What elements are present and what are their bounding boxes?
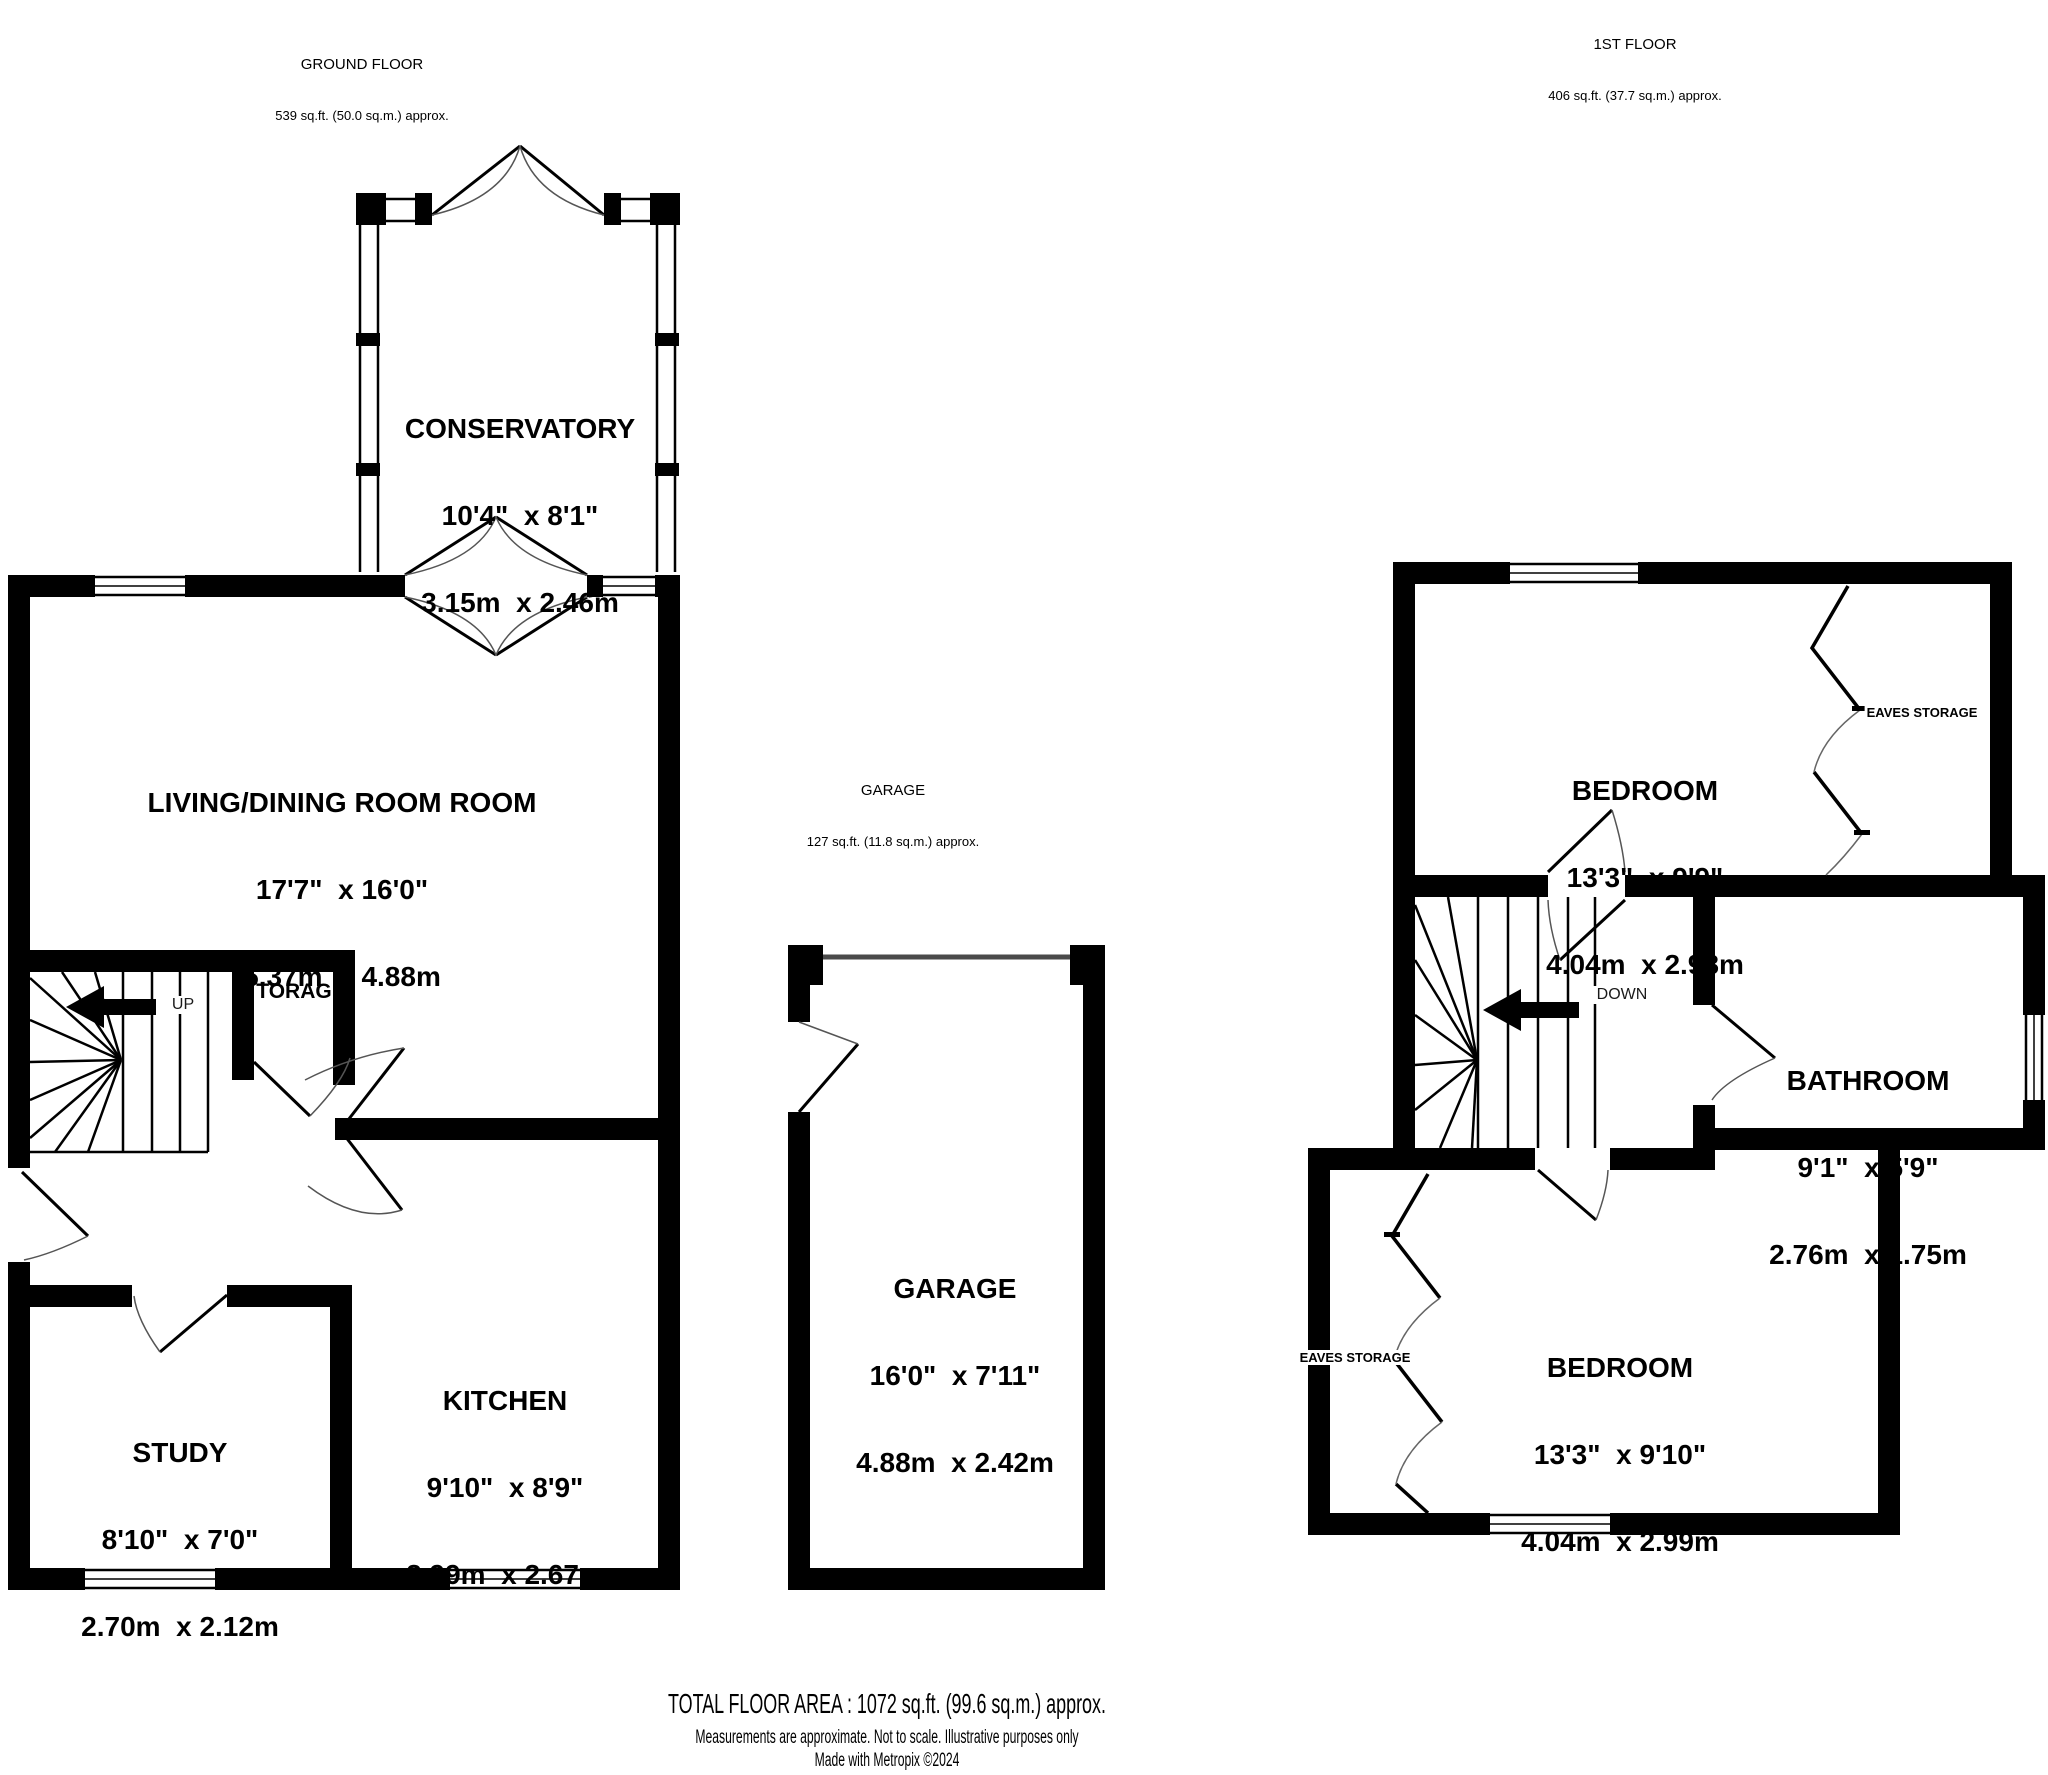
room-name: LIVING/DINING ROOM ROOM — [148, 788, 537, 817]
room-name: CONSERVATORY — [405, 414, 635, 443]
room-imperial: 13'3" x 9'10" — [1521, 1440, 1719, 1469]
room-label-garage: GARAGE 16'0" x 7'11" 4.88m x 2.42m — [856, 1216, 1054, 1506]
credit-text: Made with Metropix ©2024 — [567, 1750, 1207, 1772]
eaves-zigzag-bottom — [1384, 1174, 1442, 1513]
garage-note-title: GARAGE — [807, 782, 979, 799]
ground-floor-header: GROUND FLOOR 539 sq.ft. (50.0 sq.m.) app… — [275, 22, 448, 141]
room-label-bedroom-2: BEDROOM 13'3" x 9'10" 4.04m x 2.99m — [1521, 1295, 1719, 1585]
room-imperial: 10'4" x 8'1" — [405, 501, 635, 530]
room-imperial: 8'10" x 7'0" — [81, 1525, 279, 1554]
room-name: KITCHEN — [406, 1386, 604, 1415]
garage-note: GARAGE 127 sq.ft. (11.8 sq.m.) approx. — [807, 748, 979, 867]
room-label-bedroom-1: BEDROOM 13'3" x 9'9" 4.04m x 2.98m — [1546, 718, 1744, 1008]
room-metric: 3.15m x 2.46m — [405, 588, 635, 617]
ground-floor-area: 539 sq.ft. (50.0 sq.m.) approx. — [275, 107, 448, 124]
room-metric: 4.04m x 2.98m — [1546, 950, 1744, 979]
room-name: BATHROOM — [1769, 1066, 1967, 1095]
room-label-bathroom: BATHROOM 9'1" x 5'9" 2.76m x 1.75m — [1769, 1008, 1967, 1298]
eaves-storage-label-top: EAVES STORAGE — [1865, 705, 1980, 720]
room-metric: 5.37m x 4.88m — [148, 962, 537, 991]
room-label-study: STUDY 8'10" x 7'0" 2.70m x 2.12m — [81, 1380, 279, 1670]
storage-label: TORAG — [256, 980, 331, 1004]
room-imperial: 13'3" x 9'9" — [1546, 863, 1744, 892]
room-name: STUDY — [81, 1438, 279, 1467]
room-imperial: 9'10" x 8'9" — [406, 1473, 604, 1502]
room-metric: 4.04m x 2.99m — [1521, 1527, 1719, 1556]
room-name: BEDROOM — [1546, 776, 1744, 805]
room-name: GARAGE — [856, 1274, 1054, 1303]
stairs-up-label: UP — [168, 996, 198, 1014]
eaves-zigzag-top — [1812, 586, 1870, 875]
stairs-down-label: DOWN — [1593, 986, 1652, 1004]
total-floor-area: TOTAL FLOOR AREA : 1072 sq.ft. (99.6 sq.… — [567, 1688, 1207, 1720]
disclaimer-text: Measurements are approximate. Not to sca… — [567, 1727, 1207, 1749]
room-label-living-dining: LIVING/DINING ROOM ROOM 17'7" x 16'0" 5.… — [148, 730, 537, 1020]
first-floor-title: 1ST FLOOR — [1548, 36, 1721, 53]
room-metric: 2.76m x 1.75m — [1769, 1240, 1967, 1269]
floorplan-page: GROUND FLOOR 539 sq.ft. (50.0 sq.m.) app… — [0, 0, 2048, 1775]
garage-note-area: 127 sq.ft. (11.8 sq.m.) approx. — [807, 833, 979, 850]
room-imperial: 17'7" x 16'0" — [148, 875, 537, 904]
eaves-storage-label-bottom: EAVES STORAGE — [1298, 1350, 1413, 1365]
first-floor-header: 1ST FLOOR 406 sq.ft. (37.7 sq.m.) approx… — [1548, 2, 1721, 121]
room-metric: 2.70m x 2.12m — [81, 1612, 279, 1641]
ground-floor-title: GROUND FLOOR — [275, 56, 448, 73]
conservatory-exterior-doors — [432, 146, 604, 215]
room-metric: 2.99m x 2.67m — [406, 1560, 604, 1589]
first-floor-area: 406 sq.ft. (37.7 sq.m.) approx. — [1548, 87, 1721, 104]
room-imperial: 9'1" x 5'9" — [1769, 1153, 1967, 1182]
room-label-kitchen: KITCHEN 9'10" x 8'9" 2.99m x 2.67m — [406, 1328, 604, 1618]
room-imperial: 16'0" x 7'11" — [856, 1361, 1054, 1390]
garage-side-door — [799, 1022, 858, 1112]
room-metric: 4.88m x 2.42m — [856, 1448, 1054, 1477]
room-label-conservatory: CONSERVATORY 10'4" x 8'1" 3.15m x 2.46m — [405, 356, 635, 646]
room-name: BEDROOM — [1521, 1353, 1719, 1382]
